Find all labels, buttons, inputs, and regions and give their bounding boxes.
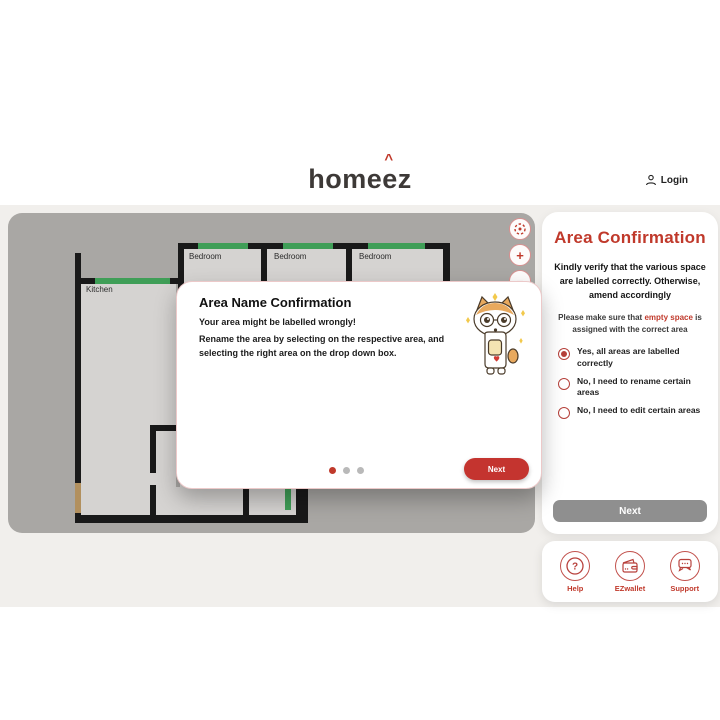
modal-warning-text: Your area might be labelled wrongly! [199,317,356,327]
note-prefix: Please make sure that [558,313,644,322]
support-label: Support [670,584,699,593]
modal-next-button[interactable]: Next [464,458,529,480]
area-name-confirmation-modal: Area Name Confirmation Your area might b… [176,281,542,489]
wallet-icon [615,551,645,581]
sidebar-instructions: Kindly verify that the various space are… [552,261,708,303]
modal-instruction-text: Rename the area by selecting on the resp… [199,333,461,360]
sidebar-note: Please make sure that empty space is ass… [552,312,708,336]
carousel-dot-2[interactable] [343,467,350,474]
carousel-dot-3[interactable] [357,467,364,474]
radio-icon[interactable] [558,407,570,419]
support-button[interactable]: Support [670,551,700,593]
ezwallet-button[interactable]: EZwallet [615,551,645,593]
wall-bottom-right [296,483,308,523]
door-left [75,483,81,513]
sidebar-next-button[interactable]: Next [553,500,707,522]
logo-roof-icon: ^ [381,151,397,168]
wall-bottom-exterior [75,515,308,523]
window-kitchen [95,278,170,284]
window-bedroom3 [368,243,425,249]
room-label-kitchen: Kitchen [86,285,113,294]
option-label: Yes, all areas are labelled correctly [577,346,705,370]
wall-left-exterior [75,253,81,521]
room-label-bedroom2: Bedroom [274,252,306,261]
sidebar-title: Area Confirmation [552,228,708,248]
shiba-mascot-illustration [461,290,529,378]
area-options-radiogroup: Yes, all areas are labelled correctly No… [558,346,706,420]
wall-interior-a-lower [150,485,156,519]
option-rename-areas[interactable]: No, I need to rename certain areas [558,376,706,400]
modal-title: Area Name Confirmation [199,295,351,310]
recenter-icon [513,222,527,236]
help-button[interactable]: ? Help [560,551,590,593]
plus-icon: + [516,248,524,263]
carousel-dots [329,467,364,474]
option-label: No, I need to rename certain areas [577,376,705,400]
help-label: Help [567,584,583,593]
login-label: Login [661,175,688,186]
option-edit-areas[interactable]: No, I need to edit certain areas [558,405,706,419]
zoom-in-button[interactable]: + [509,244,531,266]
page: homee^z Login Kitchen [0,0,720,720]
room-label-bedroom3: Bedroom [359,252,391,261]
kitchen-floor [81,284,176,515]
window-bedroom1 [198,243,248,249]
ezwallet-label: EZwallet [615,584,645,593]
recenter-button[interactable] [509,218,531,240]
wall-interior-b [243,487,249,519]
svg-text:?: ? [572,561,578,572]
logo-z: z [398,164,412,194]
radio-icon[interactable] [558,378,570,390]
window-bottom-vertical [285,486,291,510]
quick-actions-panel: ? Help EZwallet Support [542,541,718,602]
logo-text-hom: hom [308,164,367,194]
note-highlight: empty space [644,313,692,322]
option-all-labelled-correctly[interactable]: Yes, all areas are labelled correctly [558,346,706,370]
room-label-bedroom1: Bedroom [189,252,221,261]
homeez-logo: homee^z [308,164,412,195]
area-confirmation-panel: Area Confirmation Kindly verify that the… [542,212,718,534]
logo-e-roof: e^ [382,164,398,195]
window-bedroom2 [283,243,333,249]
wall-interior-a [150,425,156,473]
user-icon [645,174,657,186]
radio-selected-icon[interactable] [558,348,570,360]
chat-bubbles-icon [670,551,700,581]
corridor-floor [81,487,296,515]
login-button[interactable]: Login [645,174,688,186]
help-icon: ? [560,551,590,581]
carousel-dot-1-active[interactable] [329,467,336,474]
option-label: No, I need to edit certain areas [577,405,705,417]
logo-e: e [367,164,383,194]
